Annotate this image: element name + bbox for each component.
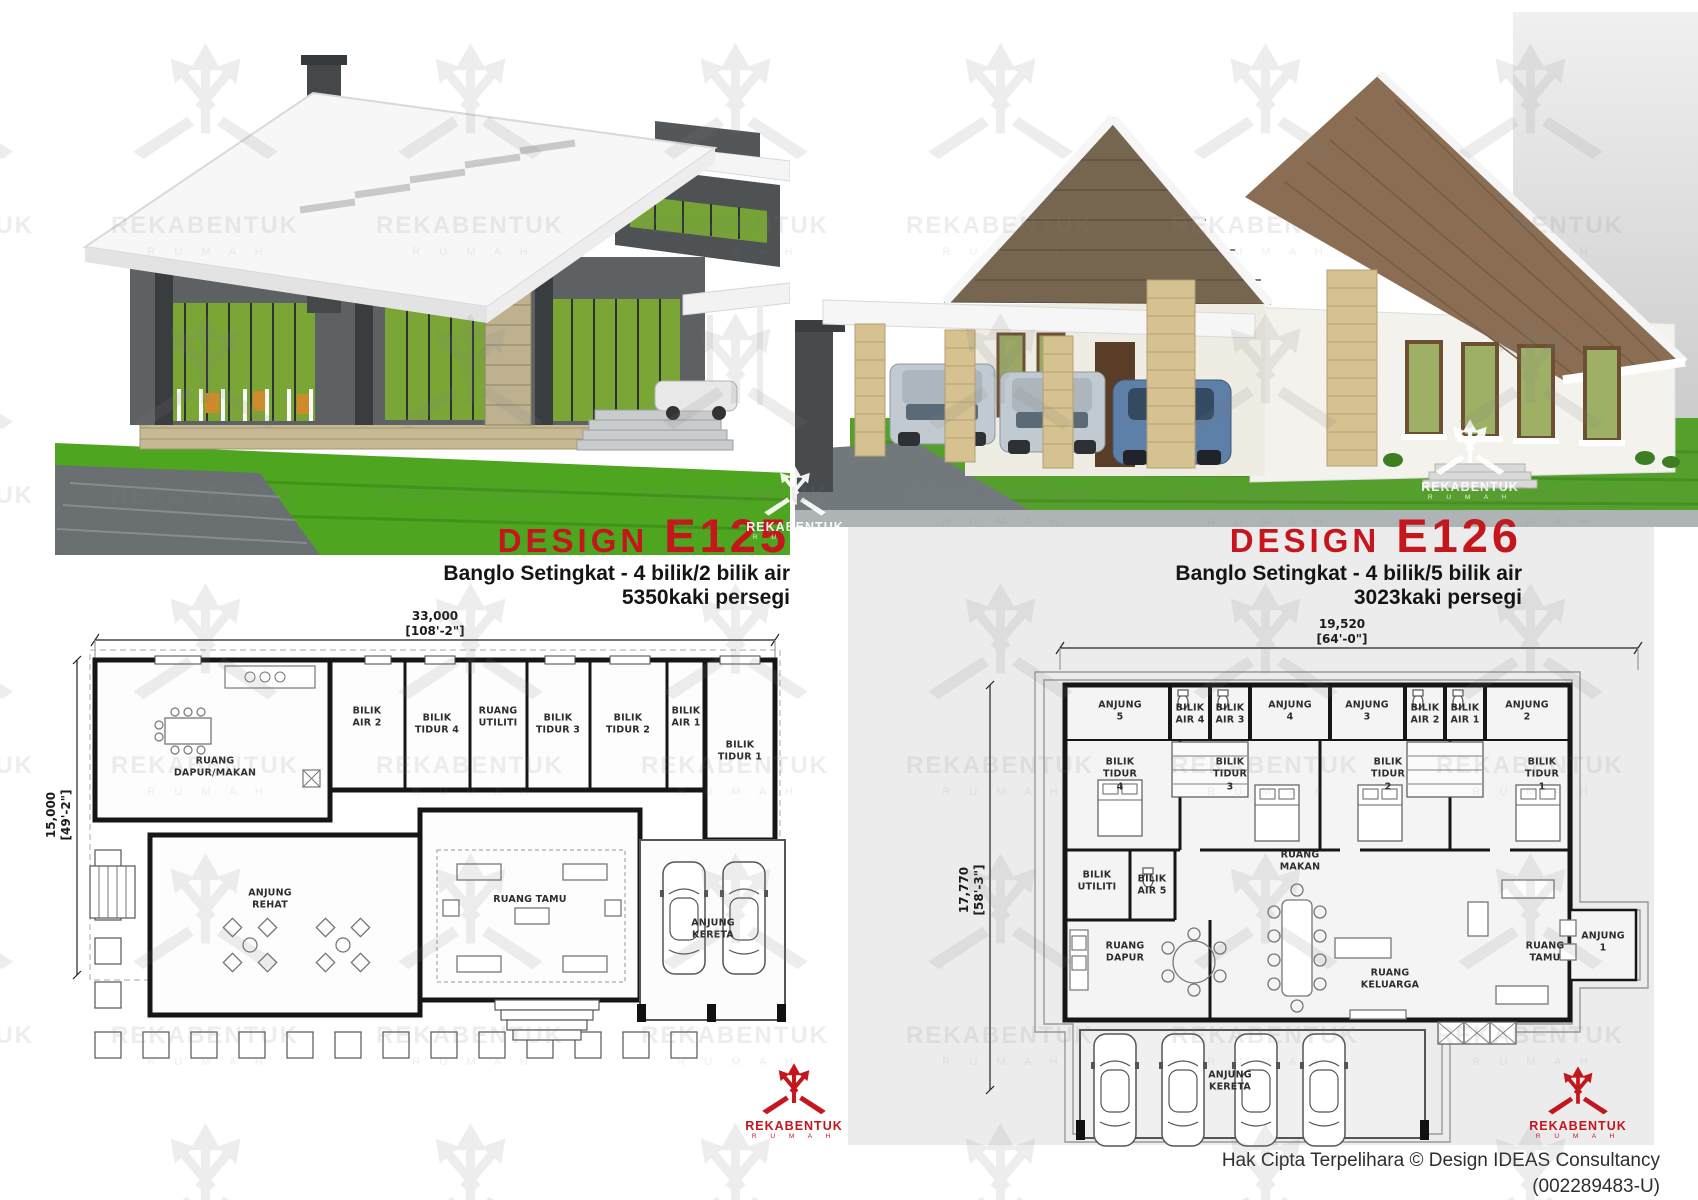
design-label: DESIGN (498, 522, 649, 559)
room-label: BILIK AIR 5 (1137, 874, 1166, 899)
copyright-line2: (002289483-U) (1222, 1174, 1660, 1200)
room-label: ANJUNG KERETA (691, 918, 735, 943)
brand-logo-mark (1546, 1065, 1610, 1119)
design-area: 5350kaki persegi (420, 587, 790, 609)
brand-logo-name: REKABENTUK (742, 1119, 846, 1133)
brand-logo-sub: R U M A H (742, 1133, 846, 1141)
room-label: BILIK TIDUR 1 (715, 740, 765, 765)
brand-logo-sub: R U M A H (1415, 494, 1525, 502)
plank-gable (945, 118, 1270, 304)
copyright-footer: Hak Cipta Terpelihara © Design IDEAS Con… (1222, 1148, 1660, 1199)
design-code: E126 (1396, 509, 1522, 562)
room-label: BILIK UTILITI (1078, 870, 1117, 895)
room-label: BILIK AIR 2 (1410, 703, 1439, 728)
entry-steps (1438, 1022, 1516, 1044)
dim-left-line (73, 656, 81, 979)
room-label: BILIK AIR 2 (352, 706, 381, 731)
design-desc: Banglo Setingkat - 4 bilik/5 bilik air (1152, 563, 1522, 585)
car (1300, 1034, 1348, 1146)
room-label: ANJUNG 2 (1505, 700, 1549, 725)
column (155, 253, 173, 425)
floorplan-e125: 33,000 [108'-2"] 15,000 [49'-2"] RUANG D… (65, 600, 790, 1070)
room-label: ANJUNG KERETA (1208, 1070, 1252, 1095)
room-label: RUANG DAPUR/MAKAN (174, 756, 256, 781)
room-label: ANJUNG 1 (1581, 931, 1625, 956)
design-desc: Banglo Setingkat - 4 bilik/2 bilik air (420, 563, 790, 585)
title-block-e126: DESIGNE126 Banglo Setingkat - 4 bilik/5 … (1152, 511, 1522, 609)
carport (1076, 1030, 1429, 1146)
design-area: 3023kaki persegi (1152, 587, 1522, 609)
render-e126-illustration (795, 12, 1698, 527)
room-label: ANJUNG 4 (1268, 700, 1312, 725)
room-label: BILIK TIDUR 3 (1213, 756, 1247, 793)
design-title: DESIGNE126 (1152, 511, 1522, 560)
brand-logo-red-right: REKABENTUK R U M A H (1528, 1065, 1628, 1142)
room-label: BILIK TIDUR 4 (415, 713, 459, 738)
title-block-e125: DESIGNE125 Banglo Setingkat - 4 bilik/2 … (420, 511, 790, 609)
room-label: RUANG UTILITI (479, 706, 518, 731)
room-label: RUANG KELUARGA (1361, 968, 1419, 993)
room-label: BILIK TIDUR 3 (536, 713, 580, 738)
room-label: ANJUNG 3 (1345, 700, 1389, 725)
dim-depth: 15,000 [49'-2"] (44, 790, 74, 841)
brand-logo-mark (760, 1062, 828, 1119)
room-label: BILIK TIDUR 4 (1103, 756, 1137, 793)
brand-logo-white-right: REKABENTUK R U M A H (1415, 418, 1525, 503)
side-steps (90, 866, 135, 918)
brand-logo-sub: R U M A H (1528, 1133, 1628, 1141)
entry-steps (577, 410, 733, 450)
room-label: RUANG TAMU (493, 894, 566, 906)
brand-logo-white-left: REKABENTUK R U M A H (745, 465, 845, 543)
copyright-line1: Hak Cipta Terpelihara © Design IDEAS Con… (1222, 1148, 1660, 1174)
dim-width: 33,000 [108'-2"] (405, 609, 464, 639)
room-label: BILIK AIR 1 (1450, 703, 1479, 728)
design-label: DESIGN (1230, 522, 1381, 559)
room-label: BILIK AIR 4 (1175, 703, 1204, 728)
brand-logo-red-left: REKABENTUK R U M A H (742, 1062, 846, 1142)
glass-walls (165, 299, 680, 421)
bed (1255, 785, 1299, 841)
dim-left-line (986, 681, 994, 1094)
room-label: RUANG MAKAN (1280, 850, 1320, 875)
room-label: BILIK AIR 1 (671, 706, 700, 731)
brand-logo-name: REKABENTUK (1415, 480, 1525, 494)
brand-logo-sub: R U M A H (745, 534, 845, 542)
dim-width: 19,520 [64'-0"] (1317, 617, 1368, 647)
design-title: DESIGNE125 (420, 511, 790, 560)
brand-logo-name: REKABENTUK (1528, 1119, 1628, 1133)
brand-logo-mark (762, 465, 828, 520)
room-label: BILIK TIDUR 2 (606, 713, 650, 738)
brand-logo-mark (1433, 418, 1507, 480)
render-e125-illustration (55, 5, 790, 555)
room-label: BILIK AIR 3 (1215, 703, 1244, 728)
floorplan-e125-drawing (65, 600, 790, 1070)
car (1159, 1034, 1207, 1146)
suv-silver-1 (890, 364, 995, 446)
dim-depth: 17,770 [58'-3"] (957, 865, 987, 916)
room-label: RUANG TAMU (1526, 941, 1565, 966)
kitchen-counter (1070, 930, 1088, 990)
car (1091, 1034, 1139, 1146)
brochure-page: DESIGNE125 Banglo Setingkat - 4 bilik/2 … (0, 0, 1698, 1200)
room-label: ANJUNG REHAT (248, 888, 292, 913)
brand-logo-name: REKABENTUK (745, 520, 845, 534)
room-label: BILIK TIDUR 1 (1525, 756, 1559, 793)
room-label: ANJUNG 5 (1098, 700, 1142, 725)
room-label: RUANG DAPUR (1106, 941, 1145, 966)
room-label: BILIK TIDUR 2 (1371, 756, 1405, 793)
